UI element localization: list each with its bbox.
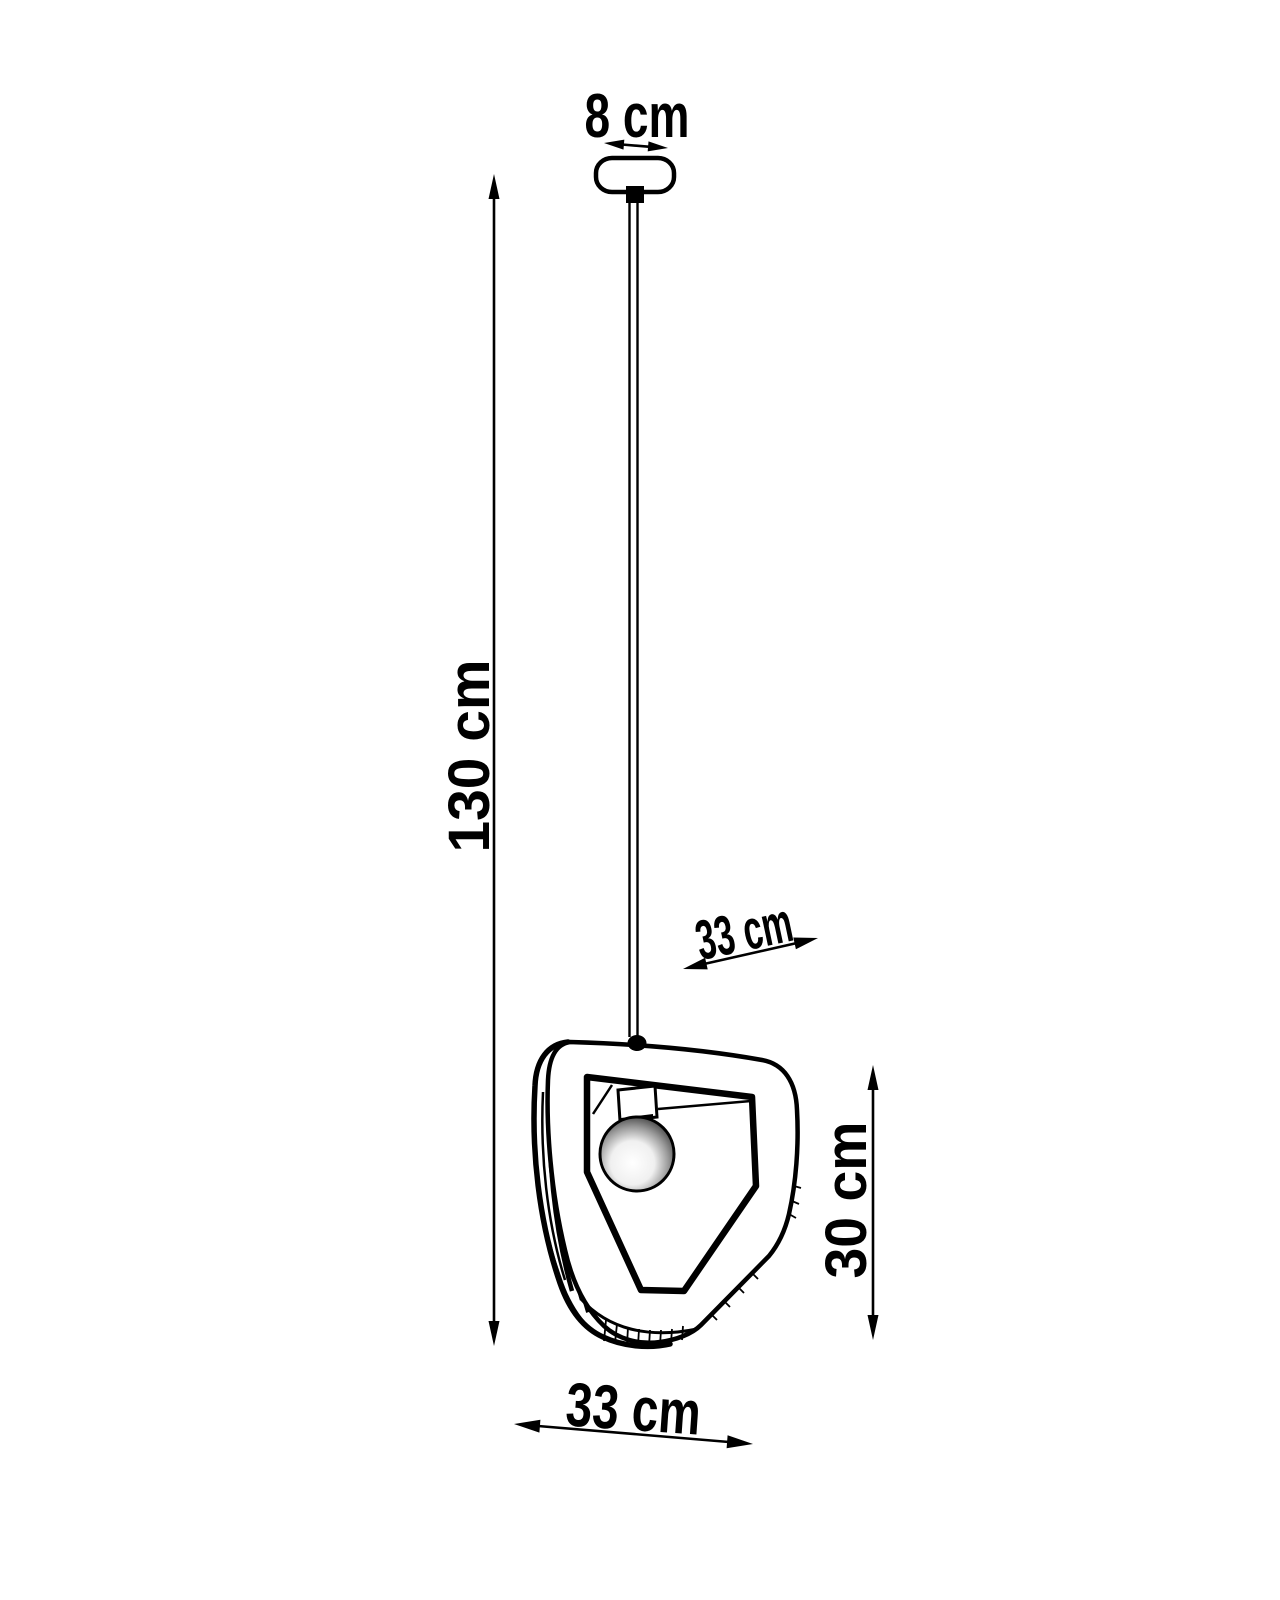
suspension-cable [628,200,647,1051]
diagram-canvas: 130 cm 8 cm 33 cm 30 cm 33 c [0,0,1280,1600]
dim-shade-depth: 33 cm [683,890,818,972]
canopy-cable-fitting [626,186,644,203]
dim-canopy-width-label: 8 cm [585,82,690,151]
dim-shade-width: 33 cm [514,1370,753,1448]
arrow-left-icon [514,1420,540,1433]
dim-shade-height-label: 30 cm [814,1122,879,1279]
lamp-shade [534,1042,801,1346]
dim-cable-length-label: 130 cm [437,660,502,853]
light-bulb [600,1117,674,1191]
dim-shade-depth-label: 33 cm [690,890,798,972]
arrow-up-icon [868,1065,879,1090]
cable-shade-connector [628,1035,647,1051]
arrow-right-icon [727,1435,753,1448]
arrow-up-icon [489,174,500,199]
ceiling-canopy [596,158,674,203]
dim-cable-length: 130 cm [437,174,502,1346]
pendant-lamp-dimension-diagram: 130 cm 8 cm 33 cm 30 cm 33 c [0,0,1280,1600]
dim-shade-width-label: 33 cm [564,1370,703,1448]
arrow-down-icon [489,1321,500,1346]
dim-canopy-width: 8 cm [585,82,690,151]
dim-shade-height: 30 cm [814,1065,879,1340]
arrow-down-icon [868,1315,879,1340]
